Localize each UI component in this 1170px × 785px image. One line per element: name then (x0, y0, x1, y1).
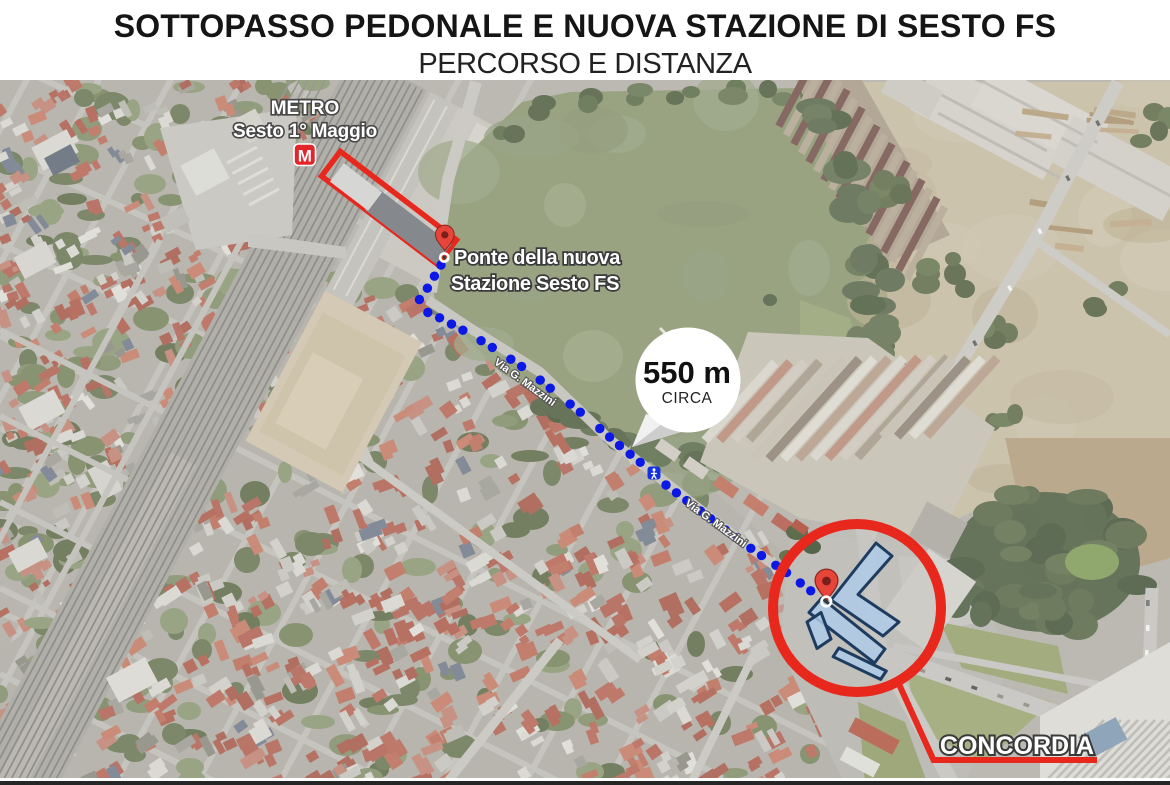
svg-text:CONCORDIA: CONCORDIA (940, 732, 1094, 760)
svg-text:METRO: METRO (271, 98, 340, 119)
svg-text:Ponte della nuova: Ponte della nuova (454, 247, 621, 269)
svg-text:M: M (298, 147, 312, 166)
svg-text:550 m: 550 m (643, 355, 731, 390)
svg-text:Stazione Sesto FS: Stazione Sesto FS (451, 273, 619, 295)
svg-text:Sesto 1° Maggio: Sesto 1° Maggio (233, 121, 377, 142)
svg-text:CIRCA: CIRCA (662, 390, 713, 407)
